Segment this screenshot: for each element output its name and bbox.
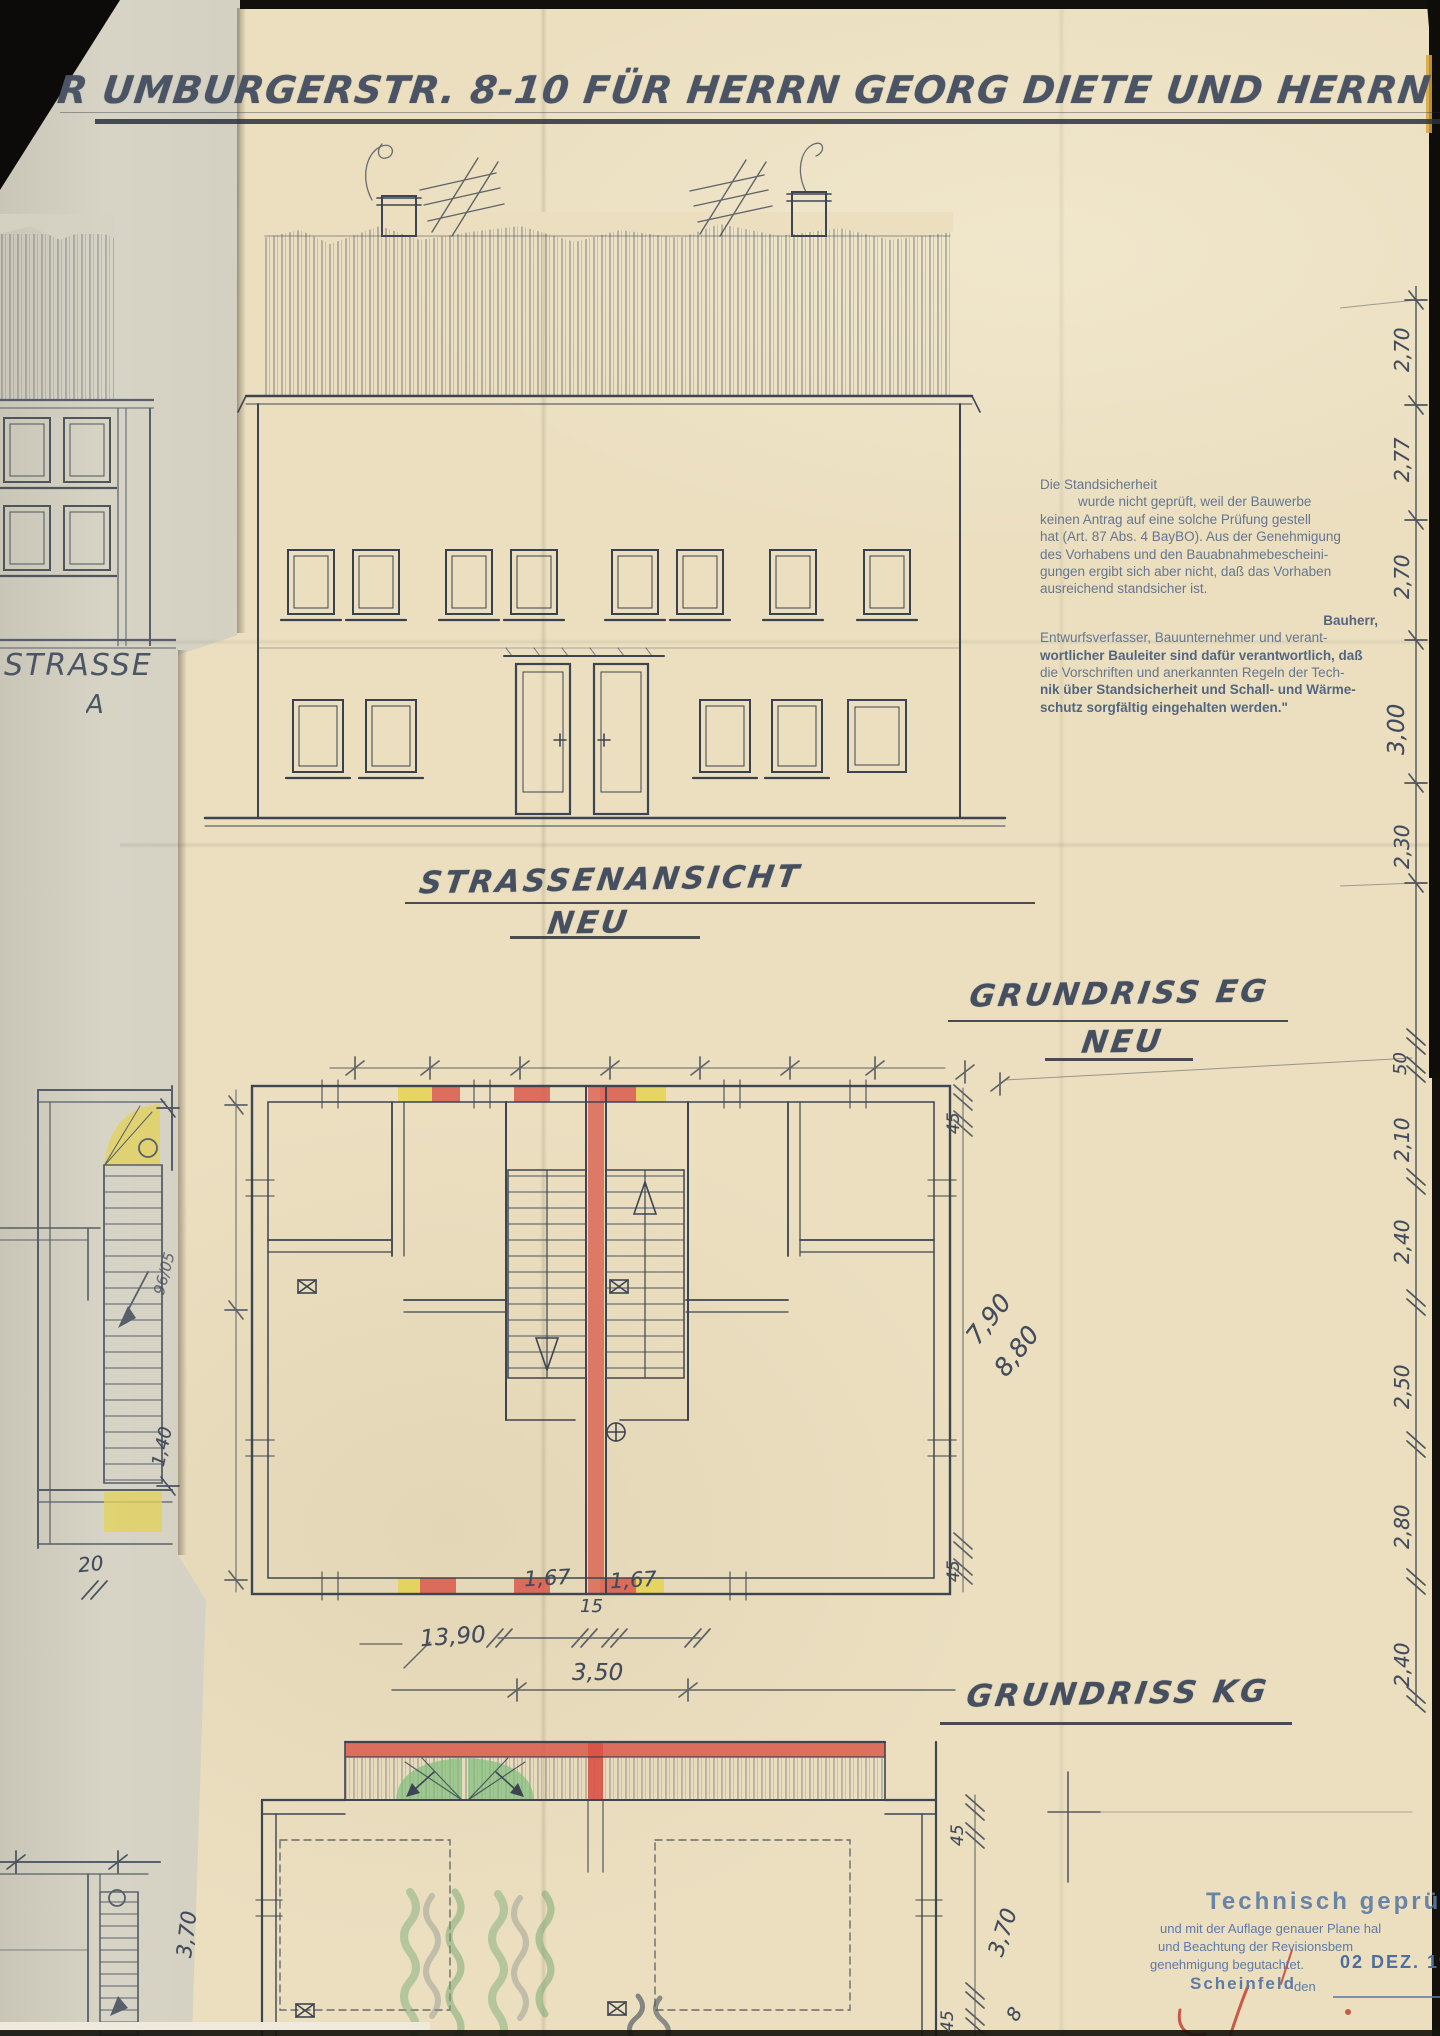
street-elevation [205, 143, 1005, 826]
stamp-line: und mit der Auflage genauer Plane hal [1160, 1921, 1381, 1936]
notice-line: gungen ergibt sich aber nicht, daß das V… [1040, 563, 1378, 580]
notice-line: wurde nicht geprüft, weil der Bauwerbe [1040, 493, 1378, 510]
drawing-title: R UMBURGERSTR. 8-10 FÜR HERRN GEORG DIET… [55, 68, 1440, 112]
stamp-fill-line [1333, 1996, 1440, 1998]
dim-right-4: 2,30 [1390, 824, 1414, 869]
drawing-layer [0, 0, 1440, 2036]
dim-eg-seg1: 1,67 [523, 1565, 571, 1591]
dim-eg-segmid: 15 [580, 1596, 603, 1617]
label-plan-eg-sub: NEU [1079, 1023, 1166, 1060]
dim-eg-seg2: 1,67 [609, 1567, 657, 1593]
dim-right-5: 50 [1390, 1052, 1411, 1075]
notice-line: schutz sorgfältig eingehalten werden." [1040, 699, 1378, 716]
stamp-city: Scheinfeld [1190, 1974, 1296, 1994]
dim-right-9: 2,80 [1390, 1504, 1414, 1549]
dim-right-10: 2,40 [1390, 1642, 1414, 1687]
dim-right-0: 2,70 [1390, 327, 1414, 372]
label-underline [1045, 1058, 1193, 1061]
scanned-architectural-plan: STRASSE A [0, 0, 1440, 2036]
stamp-den: den [1294, 1979, 1316, 1994]
notice-line: hat (Art. 87 Abs. 4 BayBO). Aus der Gene… [1040, 528, 1378, 545]
neighbor-elevation [0, 214, 176, 648]
notice-line: die Vorschriften und anerkannten Regeln … [1040, 664, 1378, 681]
stamp-line: genehmigung begutachtet. [1150, 1957, 1304, 1972]
dim-eg-wall-top: 45 [944, 1112, 964, 1134]
under-stair-plan [0, 1086, 179, 1599]
dim-right-7: 2,40 [1390, 1219, 1414, 1264]
title-guideline [60, 112, 1440, 113]
eg-floor-plan [225, 1057, 1412, 1701]
label-underline [405, 902, 1035, 904]
dim-right-6: 2,10 [1390, 1117, 1414, 1162]
standsicherheit-notice: Die Standsicherheit wurde nicht geprüft,… [1040, 476, 1378, 716]
stamp-date: 02 DEZ. 19 [1340, 1952, 1440, 1973]
stamp-title: Technisch geprüft: [1206, 1888, 1440, 1916]
label-plan-eg: GRUNDRISS EG [967, 973, 1271, 1014]
label-underline [510, 936, 700, 939]
notice-line: nik über Standsicherheit und Schall- und… [1040, 681, 1378, 698]
notice-line: des Vorhabens und den Bauabnahmebeschein… [1040, 546, 1378, 563]
scanner-edge-bottom [0, 2030, 1440, 2036]
notice-line: keinen Antrag auf eine solche Prüfung ge… [1040, 511, 1378, 528]
notice-line: Bauherr, [1040, 598, 1378, 629]
dim-right-1: 2,77 [1390, 437, 1414, 482]
notice-line: wortlicher Bauleiter sind dafür verantwo… [1040, 647, 1378, 664]
dim-eg-wall-bottom: 45 [944, 1560, 964, 1582]
notice-line: Die Standsicherheit [1040, 476, 1378, 493]
scanner-edge-top [240, 0, 1440, 9]
label-plan-kg: GRUNDRISS KG [964, 1673, 1271, 1714]
dim-right-8: 2,50 [1390, 1364, 1414, 1409]
dim-left-c: 20 [77, 1551, 105, 1578]
dim-kg-wall-top: 45 [948, 1824, 968, 1846]
smoke-squiggle [800, 143, 822, 192]
notice-line: Entwurfsverfasser, Bauunternehmer und ve… [1040, 629, 1378, 646]
dim-eg-center: 3,50 [572, 1660, 623, 1686]
scribble-texture [404, 1892, 669, 2036]
smoke-squiggle [366, 144, 393, 200]
notice-line: ausreichend standsicher ist. [1040, 580, 1378, 597]
label-underline [940, 1722, 1292, 1725]
label-street-view: STRASSENANSICHT [417, 859, 804, 902]
stamp-line: und Beachtung der Revisionsbem [1158, 1939, 1353, 1954]
scanner-edge-right [1429, 0, 1440, 1078]
dim-eg-total: 13,90 [419, 1622, 487, 1653]
label-underline [948, 1020, 1288, 1022]
dim-right-3: 3,00 [1384, 704, 1410, 755]
title-underline [95, 119, 1440, 124]
dim-right-2: 2,70 [1390, 554, 1414, 599]
under-stair-bottom [0, 1851, 160, 2036]
dim-kg-wall-bottom: 45 [938, 2010, 958, 2032]
